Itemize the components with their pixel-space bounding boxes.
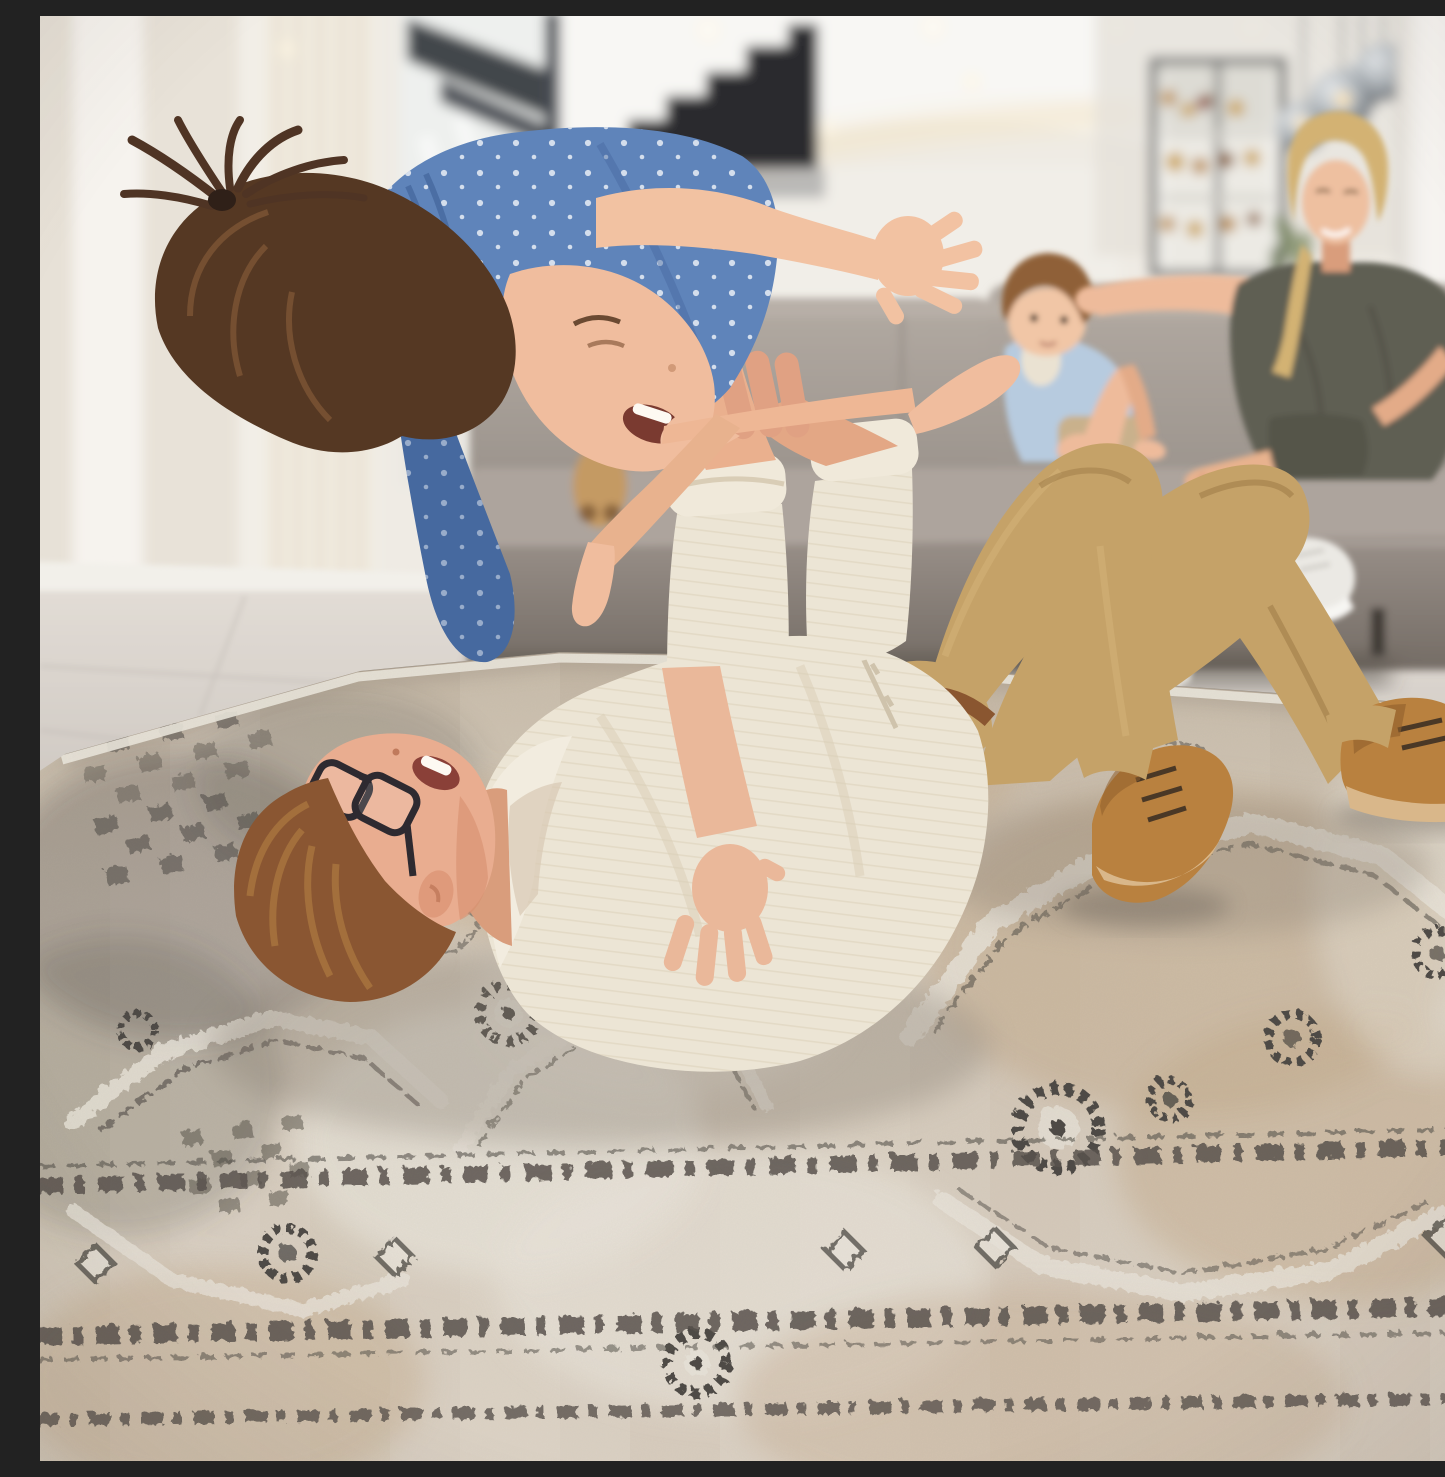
family-living-room-photo bbox=[40, 16, 1445, 1461]
vignette bbox=[40, 16, 1445, 1461]
photo-canvas bbox=[40, 16, 1445, 1461]
